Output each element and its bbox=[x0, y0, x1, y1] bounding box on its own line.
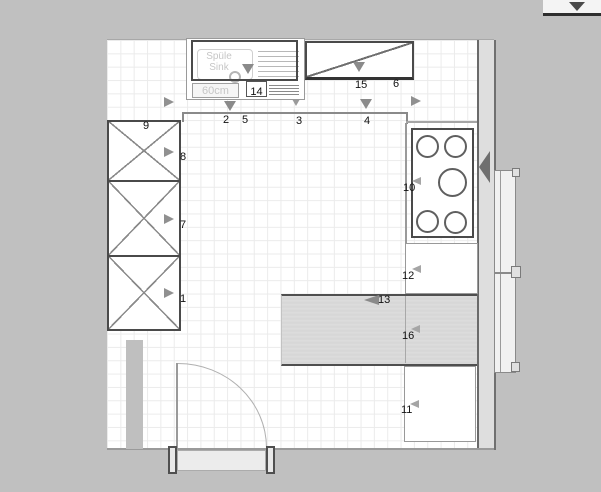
counter-top-edge bbox=[406, 121, 477, 123]
window-leaf-top[interactable] bbox=[494, 170, 516, 273]
sink-size-text: 60cm bbox=[193, 86, 238, 97]
item-label-12: 12 bbox=[402, 270, 414, 283]
inner-wall-corner-left bbox=[182, 112, 184, 122]
kitchen-planner-canvas: Spüle Sink 60cm 14 bbox=[0, 0, 601, 492]
direction-arrow-left-icon bbox=[364, 295, 379, 305]
door-jamb-right bbox=[266, 446, 275, 474]
item-label-13: 13 bbox=[378, 294, 390, 307]
wall-column bbox=[126, 340, 143, 449]
item-label-4: 4 bbox=[364, 115, 370, 128]
item-label-3: 3 bbox=[296, 115, 302, 128]
burner-icon bbox=[416, 210, 439, 233]
window-handle-icon bbox=[511, 362, 520, 372]
door-leaf[interactable] bbox=[176, 363, 178, 450]
direction-arrow-left-big-icon bbox=[479, 151, 490, 183]
direction-arrow-down-icon bbox=[353, 62, 365, 72]
window-handle-icon bbox=[512, 168, 520, 177]
burner-large-icon bbox=[438, 168, 467, 197]
wall-cabinet-over-sink[interactable] bbox=[191, 40, 298, 81]
sink-drainer-hatch-2 bbox=[269, 85, 299, 96]
sink-assembly[interactable]: Spüle Sink 60cm 14 bbox=[186, 38, 305, 100]
burner-icon bbox=[444, 211, 467, 234]
burner-icon bbox=[444, 135, 467, 158]
item-label-9: 9 bbox=[143, 120, 149, 133]
sink-size-box: 60cm bbox=[192, 83, 239, 98]
inner-wall-line-top bbox=[183, 112, 407, 114]
item-label-5: 5 bbox=[242, 114, 248, 127]
item-label-8: 8 bbox=[180, 151, 186, 164]
item-label-14: 14 bbox=[250, 86, 262, 98]
wall-cabinet-15[interactable] bbox=[305, 41, 414, 80]
direction-arrow-down-icon bbox=[292, 99, 300, 106]
item-label-10: 10 bbox=[403, 182, 415, 195]
direction-arrow-right-icon bbox=[164, 147, 174, 157]
direction-arrow-right-icon bbox=[164, 97, 174, 107]
direction-arrow-down-icon bbox=[242, 64, 254, 74]
direction-arrow-down-icon bbox=[224, 101, 236, 111]
item-label-16: 16 bbox=[402, 330, 414, 343]
burner-icon bbox=[416, 135, 439, 158]
item-label-11: 11 bbox=[401, 404, 412, 417]
bottom-wall-edge bbox=[107, 448, 494, 450]
window-handle-icon bbox=[511, 266, 521, 278]
door-jamb-left bbox=[168, 446, 177, 474]
item-14-tag: 14 bbox=[246, 81, 267, 97]
door-panel[interactable] bbox=[177, 450, 266, 471]
dropdown-button[interactable] bbox=[543, 0, 601, 16]
direction-arrow-down-icon bbox=[360, 99, 372, 109]
item-label-2: 2 bbox=[223, 114, 229, 127]
direction-arrow-right-icon bbox=[411, 96, 421, 106]
item-label-15: 15 bbox=[355, 79, 367, 92]
direction-arrow-right-icon bbox=[164, 288, 174, 298]
item-label-7: 7 bbox=[180, 219, 186, 232]
dropdown-arrow-icon bbox=[569, 2, 585, 11]
item-label-6: 6 bbox=[393, 78, 399, 91]
direction-arrow-right-icon bbox=[164, 214, 174, 224]
window-leaf-bottom[interactable] bbox=[494, 273, 516, 373]
item-label-1: 1 bbox=[180, 293, 186, 306]
